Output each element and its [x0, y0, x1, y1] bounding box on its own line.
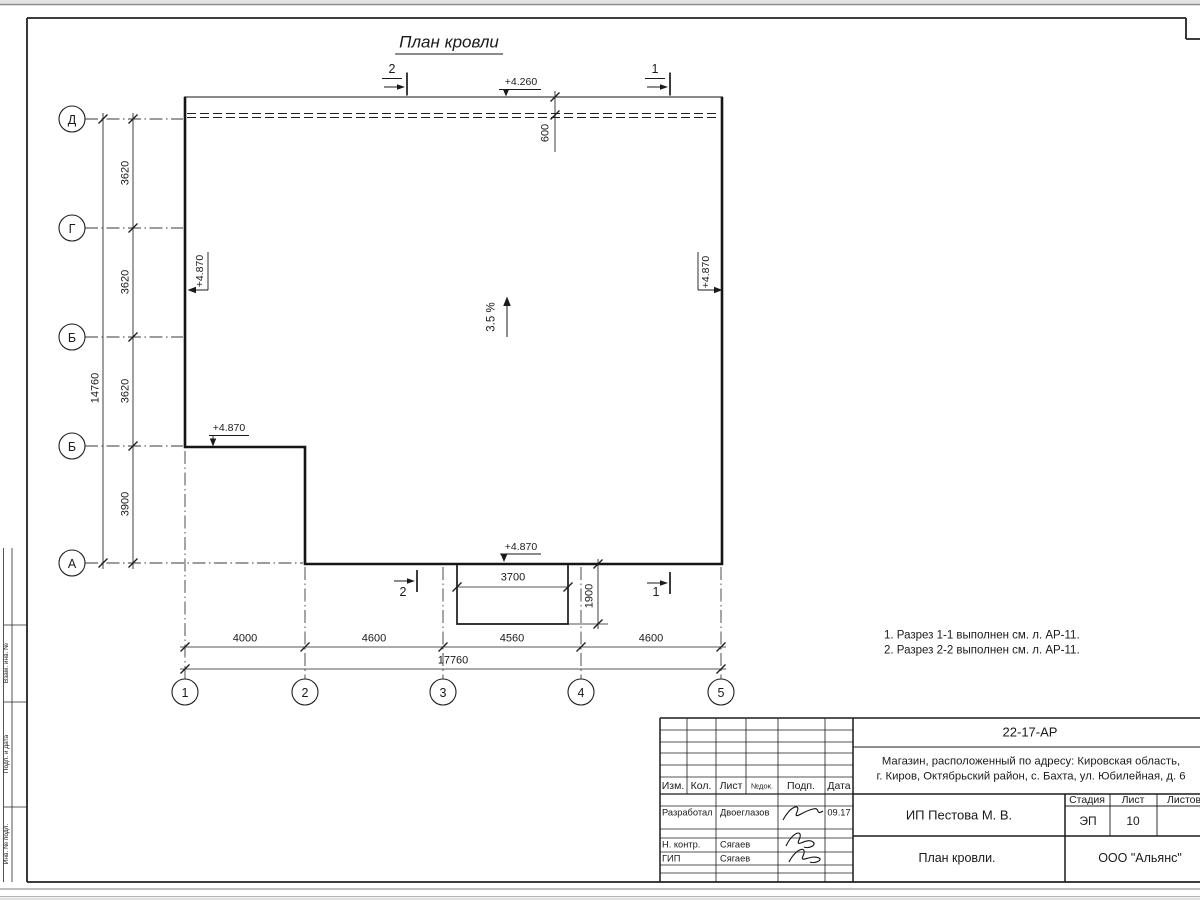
dimension-lines	[103, 91, 726, 669]
dim-left-2: 3620	[121, 270, 132, 294]
dim-bottom-4: 4600	[639, 634, 663, 645]
axis-label-col-3: 3	[440, 687, 447, 700]
side-stamp-label-1: Взам. инв. №	[4, 643, 11, 683]
slope-label: 3.5 %	[486, 302, 498, 331]
side-stamp-label-2: Подп. и дата	[4, 735, 11, 773]
stamp-sheet-number: 10	[1126, 815, 1139, 827]
stamp-role-ncontrol: Н. контр.	[662, 840, 700, 849]
dimension-ticks	[99, 93, 726, 674]
stamp-date-developer: 09.17	[827, 808, 850, 817]
elevation-eave: +4.260	[505, 77, 537, 88]
stamp-address-line1: Магазин, расположенный по адресу: Кировс…	[882, 756, 1180, 767]
stamp-code: 22-17-АР	[1003, 726, 1058, 739]
stamp-name-developer: Двоеглазов	[720, 808, 769, 817]
dim-overhang: 600	[541, 124, 552, 142]
elevation-left: +4.870	[195, 255, 206, 287]
note-1: 1. Разрез 1-1 выполнен см. л. АР-11.	[884, 630, 1080, 642]
dim-canopy-depth: 1900	[585, 584, 596, 608]
section-mark-1-top: 1	[652, 63, 659, 76]
axis-label-row-b1: Б	[68, 332, 76, 345]
stamp-address-line2: г. Киров, Октябрьский район, с. Бахта, у…	[876, 771, 1185, 782]
slope-arrow	[503, 297, 511, 338]
dim-left-total: 14760	[91, 373, 102, 404]
axis-label-row-a: А	[68, 558, 76, 571]
building-outline	[184, 97, 723, 564]
stamp-col-kol: Кол.	[691, 781, 712, 792]
roof-overhang-dashed	[187, 114, 719, 118]
stamp-sheets-label: Листов	[1167, 795, 1200, 806]
note-2: 2. Разрез 2-2 выполнен см. л. АР-11.	[884, 645, 1080, 657]
dim-left-1: 3620	[121, 161, 132, 185]
drawing-frame	[27, 18, 1200, 882]
section-mark-2-bottom: 2	[400, 586, 407, 599]
stamp-name-ncontrol: Сягаев	[720, 840, 750, 849]
axis-label-col-1: 1	[182, 687, 189, 700]
axis-label-row-g: Г	[69, 223, 76, 236]
dim-bottom-1: 4000	[233, 634, 257, 645]
dim-left-4: 3900	[121, 492, 132, 516]
elevation-arrows	[188, 89, 723, 562]
grid-axis-bubbles	[59, 106, 734, 705]
dim-canopy-width: 3700	[501, 573, 525, 584]
axis-label-col-4: 4	[578, 687, 585, 700]
signature-control-gip	[786, 833, 820, 863]
side-stamp-label-3: Инв. № подл.	[4, 824, 11, 865]
dim-bottom-2: 4600	[362, 634, 386, 645]
stamp-sheet-label: Лист	[1122, 795, 1145, 806]
elevation-right: +4.870	[701, 256, 712, 288]
signature-developer	[783, 807, 823, 820]
axis-label-row-d: Д	[68, 114, 76, 127]
stamp-stage-value: ЭП	[1079, 815, 1096, 827]
dim-bottom-total: 17760	[438, 656, 469, 667]
stamp-company: ООО "Альянс"	[1098, 852, 1182, 865]
elevation-bottom: +4.870	[505, 542, 537, 553]
dim-left-3: 3620	[121, 379, 132, 403]
axis-label-row-b2: Б	[68, 441, 76, 454]
stamp-role-developer: Разработал	[662, 808, 713, 817]
stamp-role-gip: ГИП	[662, 854, 680, 863]
section-mark-1-bottom: 1	[653, 586, 660, 599]
stamp-col-list: Лист	[720, 781, 743, 792]
dim-bottom-3: 4560	[500, 634, 524, 645]
stamp-name-gip: Сягаев	[720, 854, 750, 863]
section-mark-2-top: 2	[389, 63, 396, 76]
stamp-col-data: Дата	[827, 781, 850, 792]
stamp-col-ndok: №док.	[751, 782, 773, 790]
stamp-col-podp: Подп.	[787, 781, 815, 792]
section-marks	[382, 73, 670, 595]
stamp-col-izm: Изм.	[662, 781, 685, 792]
stamp-client: ИП Пестова М. В.	[906, 809, 1012, 822]
drawing-sheet: План кровли Д Г Б Б А 1 2 3 4 5 3620 362…	[0, 0, 1200, 900]
axis-label-col-5: 5	[718, 687, 725, 700]
axis-label-col-2: 2	[302, 687, 309, 700]
stamp-stage-label: Стадия	[1069, 795, 1105, 806]
stamp-sheet-title: План кровли.	[918, 852, 995, 865]
elevation-step: +4.870	[213, 423, 245, 434]
drawing-title: План кровли	[395, 34, 503, 55]
